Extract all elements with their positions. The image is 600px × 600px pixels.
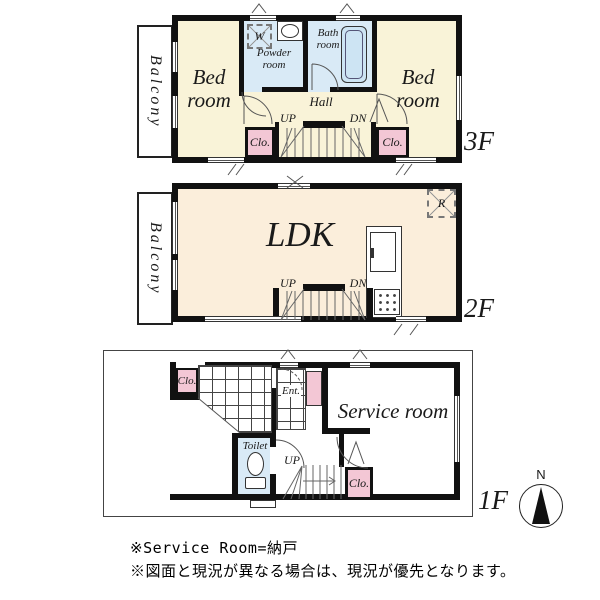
compass: N xyxy=(0,0,600,600)
compass-circle xyxy=(519,484,563,528)
footnote-disclaimer: ※図面と現況が異なる場合は、現況が優先となります。 xyxy=(130,560,516,581)
compass-north-label: N xyxy=(532,468,550,482)
footnote-service-room: ※Service Room=納戸 xyxy=(130,537,298,558)
floorplan-page: Balcony W Clo. Clo. xyxy=(0,0,600,600)
